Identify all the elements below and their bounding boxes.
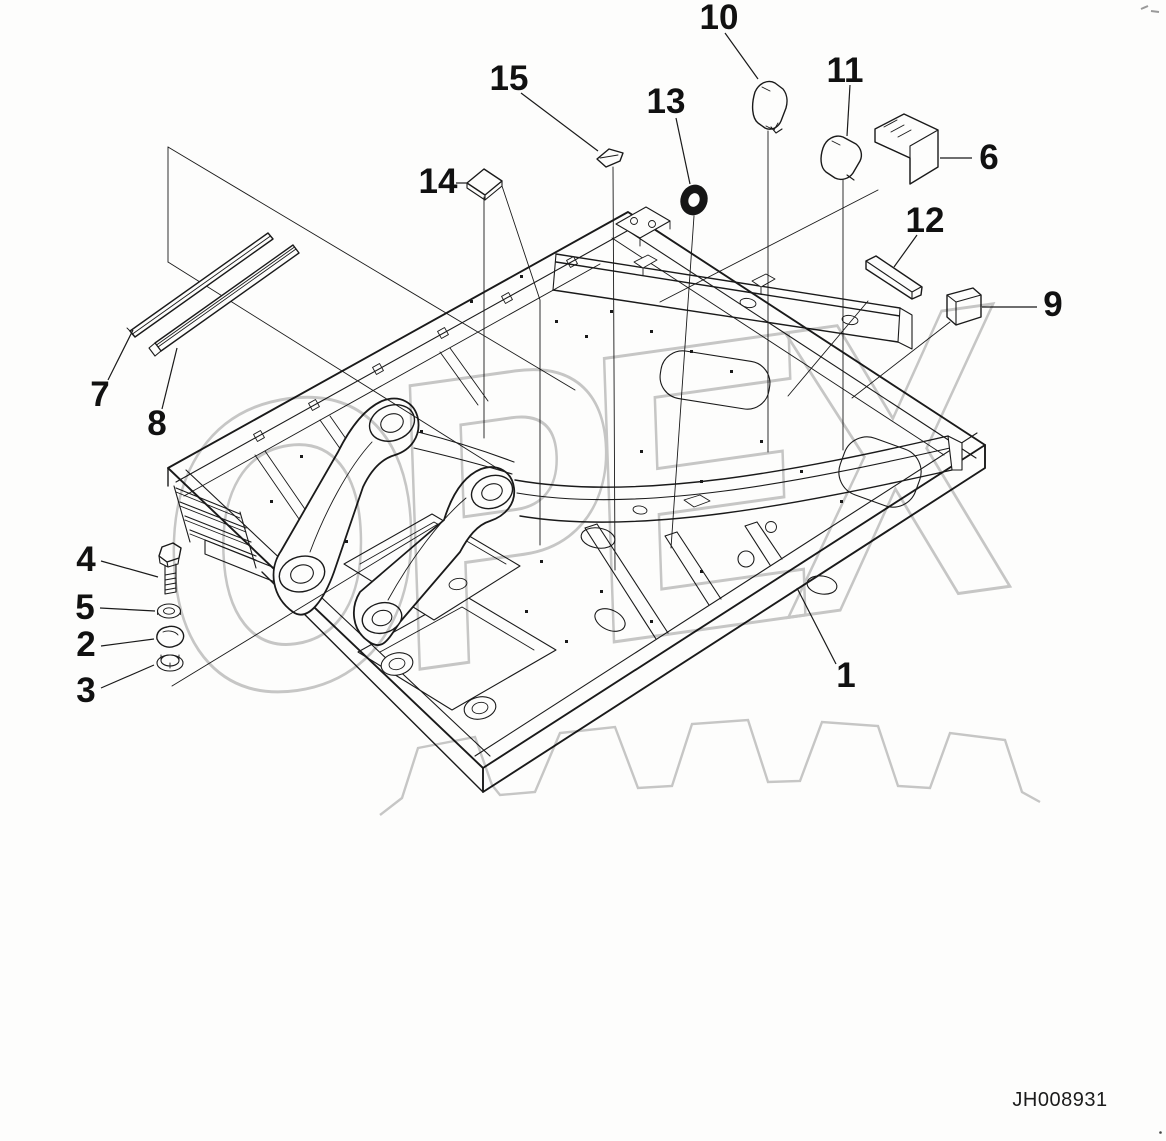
scan-artifact-top-right: [1141, 6, 1159, 12]
callout-9: 9: [982, 285, 1063, 324]
callout-7-leader: [108, 330, 133, 380]
callout-15-leader: [521, 93, 598, 151]
callout-5-leader: [100, 608, 155, 611]
callout-4-leader: [101, 561, 158, 577]
callout-5: 5: [75, 588, 155, 627]
exploded-parts-diagram: 123456789101112131415 JH008931 OPEX: [0, 0, 1166, 1141]
callout-11: 11: [827, 51, 864, 136]
drawing-code: JH008931: [1012, 1089, 1107, 1111]
callout-4: 4: [76, 540, 158, 579]
callout-13: 13: [647, 82, 690, 184]
callout-2-label: 2: [76, 625, 95, 664]
part-6-block: [875, 114, 938, 184]
callout-2-leader: [101, 639, 154, 646]
callout-6-label: 6: [979, 138, 998, 177]
watermark: OPEX: [152, 214, 1040, 815]
callout-11-label: 11: [827, 51, 864, 90]
callout-3-leader: [101, 665, 154, 688]
callout-10-label: 10: [700, 0, 739, 37]
callout-10: 10: [700, 0, 758, 79]
callout-10-leader: [725, 33, 758, 79]
part-11-mount: [821, 136, 861, 180]
watermark-text: OPEX: [152, 214, 1018, 793]
callout-15-label: 15: [490, 59, 529, 98]
callout-13-leader: [676, 118, 690, 184]
parts-diagram-page: 123456789101112131415 JH008931 OPEX: [0, 0, 1166, 1141]
callout-6: 6: [940, 138, 999, 177]
callout-15: 15: [490, 59, 598, 151]
callout-13-label: 13: [647, 82, 686, 121]
callout-2: 2: [76, 625, 154, 664]
part-14-plate: [467, 169, 502, 200]
callout-14: 14: [419, 162, 467, 201]
callout-7-label: 7: [90, 375, 109, 414]
part-15-plate: [597, 149, 623, 167]
callout-9-label: 9: [1043, 285, 1062, 324]
callout-7: 7: [90, 330, 133, 414]
part-13-ring: [676, 181, 711, 219]
callout-3: 3: [76, 665, 154, 710]
part-10-mount: [753, 81, 787, 133]
callout-14-label: 14: [419, 162, 458, 201]
callout-5-label: 5: [75, 588, 94, 627]
callout-3-label: 3: [76, 671, 95, 710]
callout-4-label: 4: [76, 540, 96, 579]
callout-11-leader: [847, 85, 850, 136]
scan-artifact-dot: [1159, 1131, 1162, 1134]
